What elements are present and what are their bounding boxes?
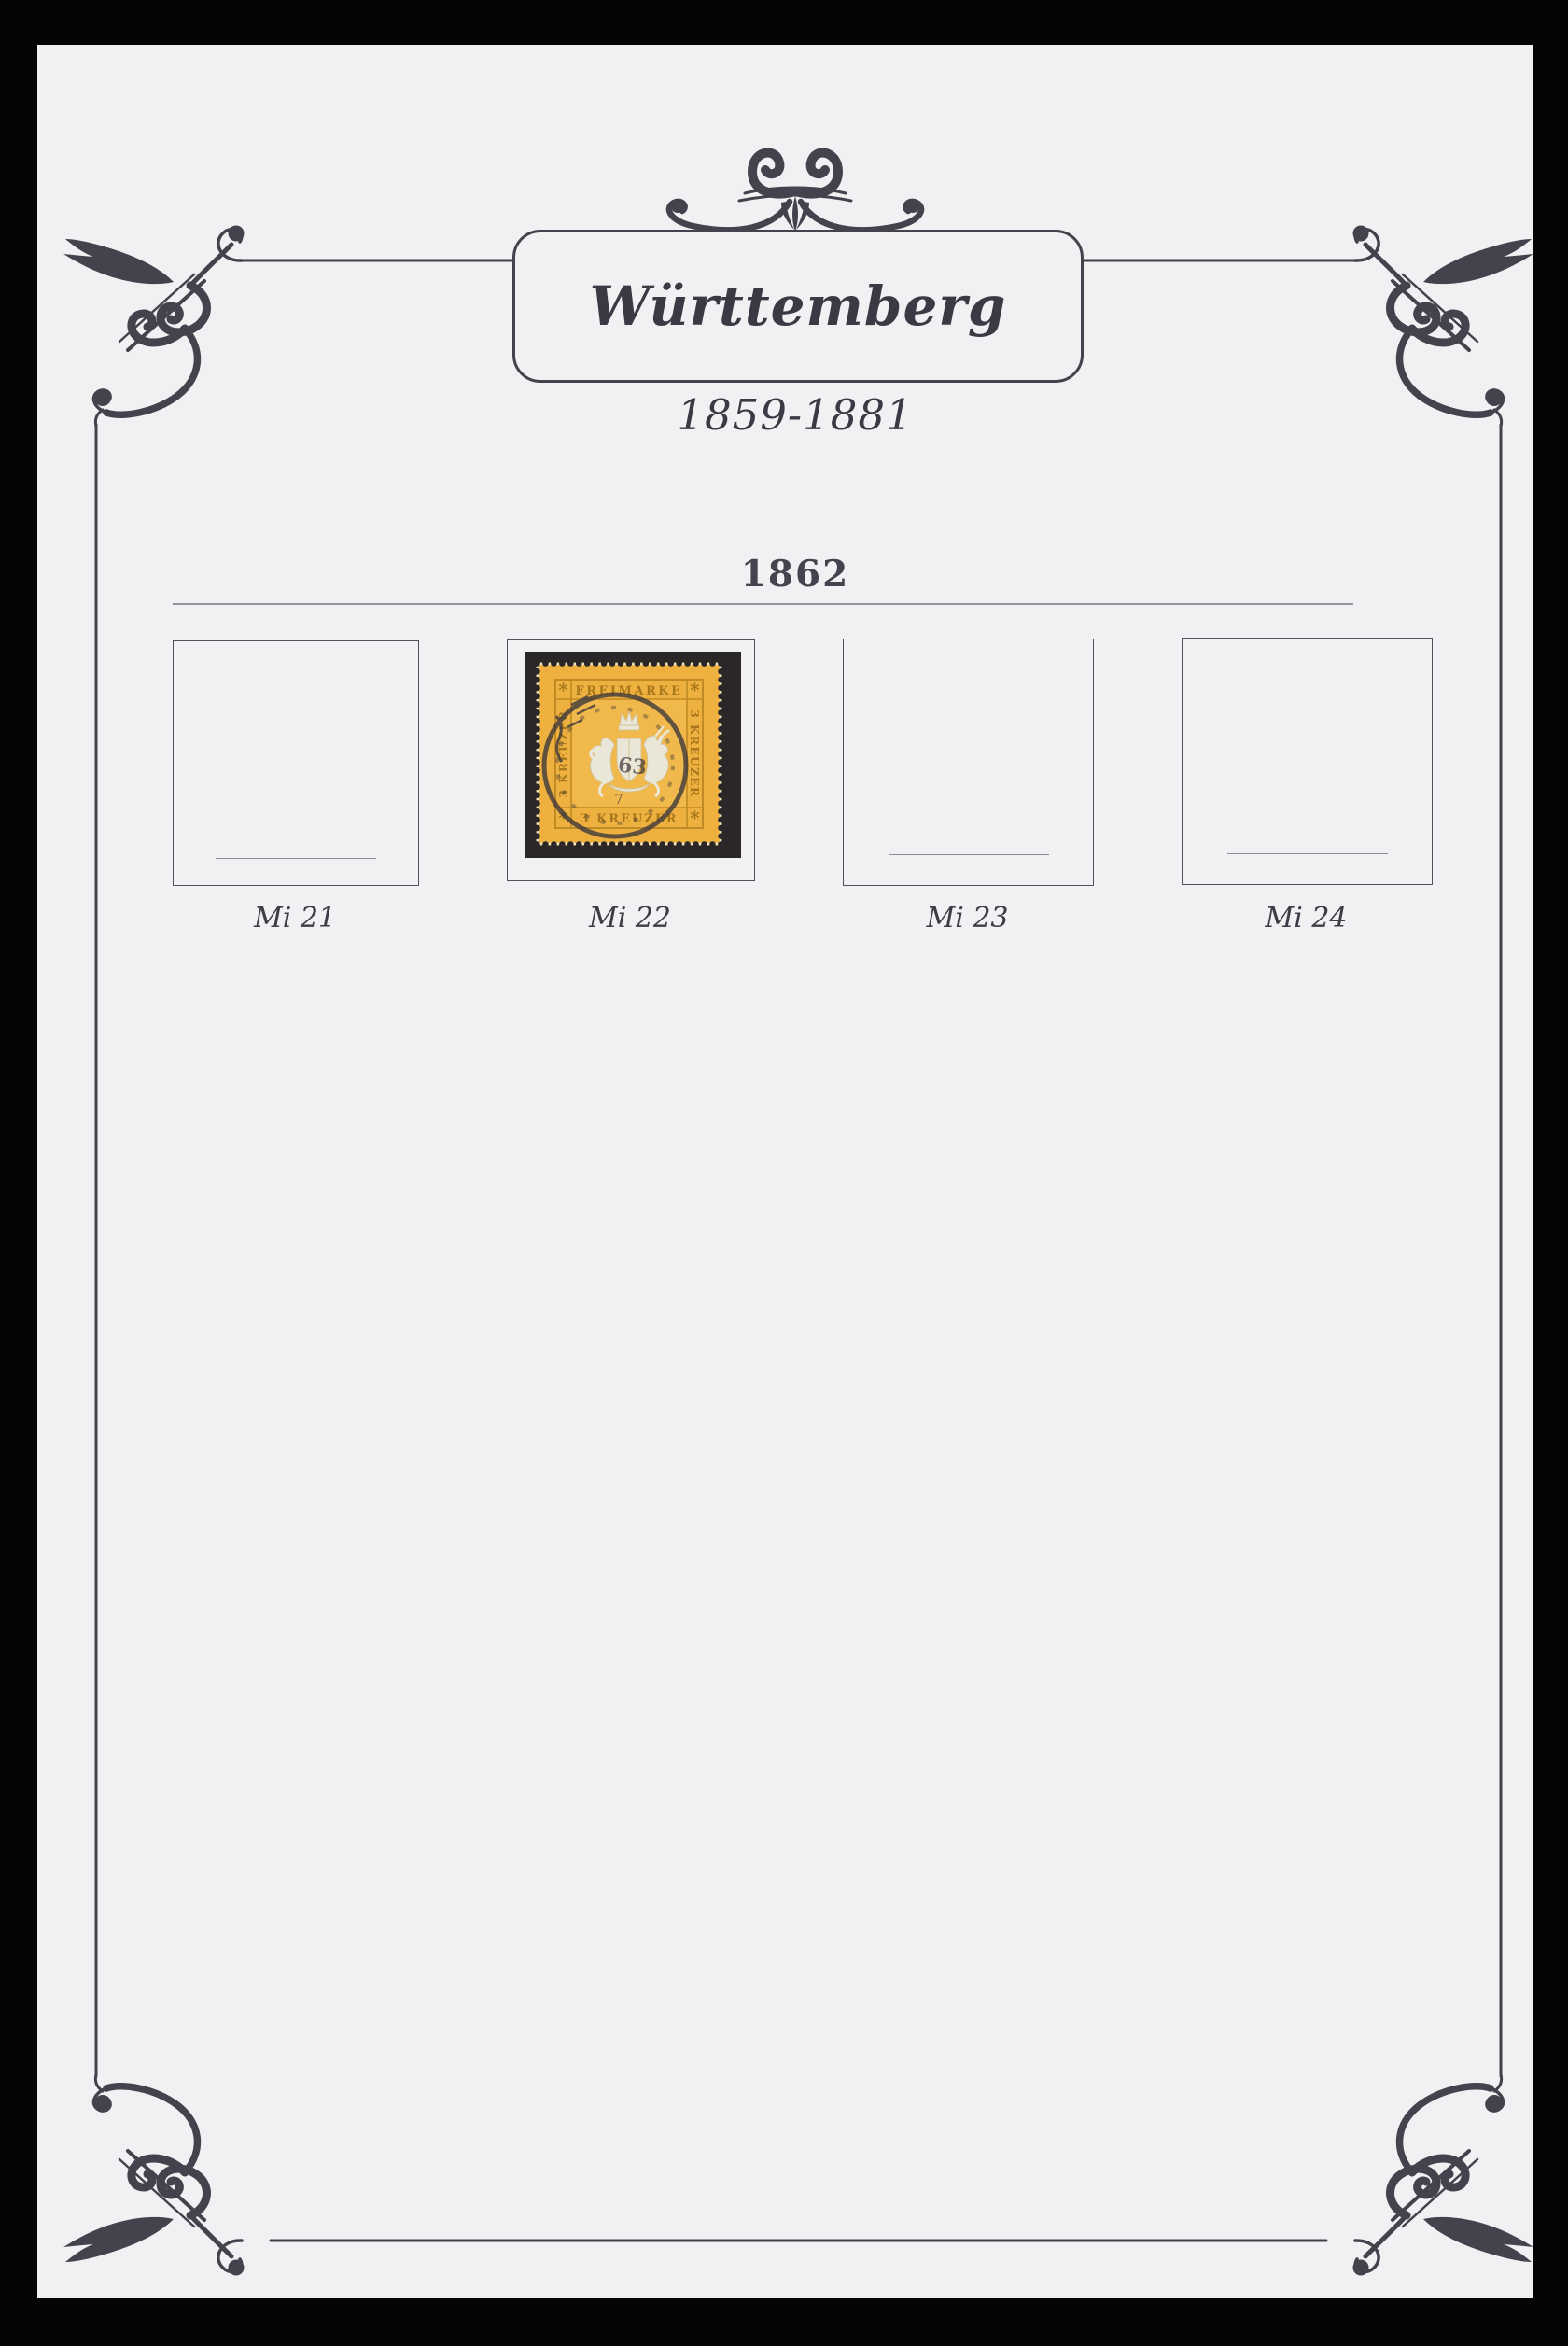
center-ornament [669,153,921,232]
stamp-mount: FREIMARKE 3 KREUZER 3 KREUZER 3 KREUZER … [525,652,741,858]
title-cartouche: Württemberg [512,230,1084,383]
stamp-slot-mi22: FREIMARKE 3 KREUZER 3 KREUZER 3 KREUZER … [507,639,755,881]
catalog-label-mi24: Mi 24 [1182,902,1431,934]
page-title: Württemberg [590,274,1007,338]
corner-mark-icon: * [690,679,700,701]
write-in-line [216,858,376,860]
stamp-slot-mi21 [173,640,419,886]
corner-flourish-bottom-left [63,2074,245,2276]
corner-mark-icon: * [690,807,700,829]
catalog-label-mi21: Mi 21 [173,902,417,934]
year-rule [173,603,1353,605]
catalog-label-mi22: Mi 22 [507,902,753,934]
stamp: FREIMARKE 3 KREUZER 3 KREUZER 3 KREUZER … [536,662,722,846]
year-heading: 1862 [22,553,1568,596]
right-inscription: 3 KREUZER [688,710,701,798]
corner-flourish-bottom-right [1353,2074,1534,2276]
write-in-line [1227,853,1388,855]
stamp-slot-mi23 [843,639,1094,886]
catalog-label-mi23: Mi 23 [843,902,1092,934]
corner-mark-icon: * [558,679,568,701]
postmark-number: 63 [617,752,648,780]
write-in-line [889,854,1049,856]
album-photo: Württemberg 1859-1881 1862 [0,0,1568,2346]
date-range: 1859-1881 [22,390,1568,440]
stamp-slot-mi24 [1182,638,1433,885]
postmark-digit: 7 [614,791,623,808]
